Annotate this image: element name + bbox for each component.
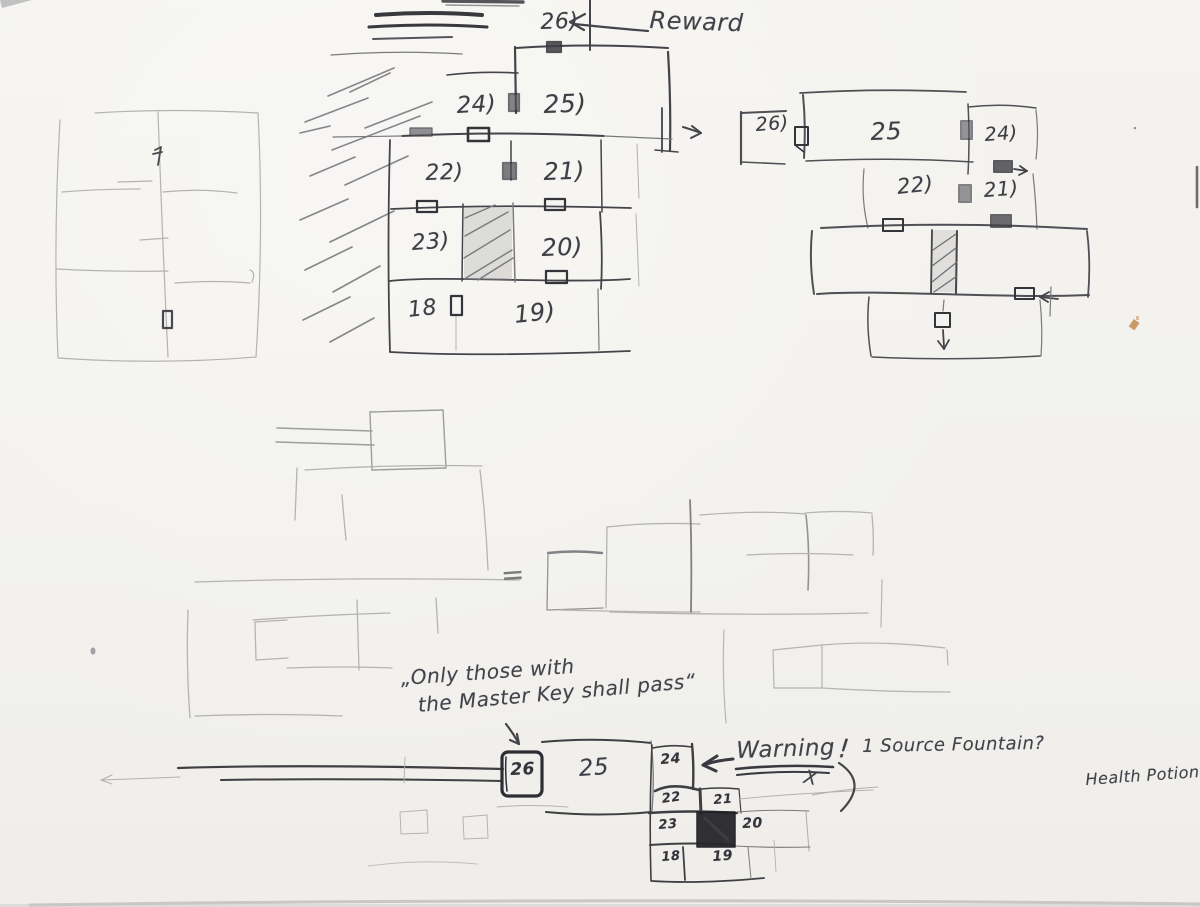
map-main-hatched-cell [462,203,515,282]
room-label-main-26: 26) [540,11,579,34]
equals-annotation: = [500,560,526,590]
room-label-right-24: 24) [984,124,1018,145]
room-label-bottom-18: 18 [661,850,681,864]
warning-annotation: Warning [736,737,835,763]
warning-bracket [839,763,855,811]
map-main-top-strokes [331,13,487,55]
faint-sketch-lower-right [723,580,950,723]
room-label-right-22: 22) [896,173,934,198]
room-label-right-26: 26) [755,114,789,135]
room-label-main-23: 23) [411,230,451,255]
map-right-walls [741,90,1089,359]
room-label-main-22: 22) [425,162,464,185]
map-bottom-corridor [101,766,503,784]
reward-arrow-icon [570,14,648,31]
room-label-bottom-22: 22 [661,790,682,806]
room-label-bottom-23: 23 [658,818,678,832]
room-label-main-19: 19) [513,299,557,327]
sketch-page: 26) 24) 25) 22) 21) 23) 20) 18 19) 26) 2… [0,0,1200,907]
room-label-bottom-21: 21 [713,793,733,807]
map-right-hatched-column [931,230,957,293]
room-label-bottom-24: 24 [660,752,681,767]
room-label-main-18: 18 [407,297,438,322]
transform-arrow-icon [683,126,701,138]
reward-annotation: Reward [649,8,744,35]
room-label-main-21: 21) [543,159,585,184]
room-label-bottom-25: 25 [578,756,610,781]
warning-arrow-icon [703,756,733,771]
room-label-right-21: 21) [983,178,1019,200]
paper-specks [91,127,1140,655]
room-label-main-24: 24) [456,93,497,118]
fountain-question: 1 Source Fountain? [862,735,1045,756]
room-label-bottom-19: 19 [712,849,733,864]
room-label-main-25: 25) [543,90,587,116]
room-label-main-20: 20) [541,235,583,260]
room-label-bottom-26: 26 [510,761,535,779]
map-bottom-dark-cell [697,812,735,847]
faint-sketch-upper [276,410,446,470]
faint-sketch-equivalent [547,500,873,614]
room-label-right-25: 25 [870,119,902,144]
room-label-bottom-20: 20 [742,816,763,831]
quote-arrow-icon [506,724,519,744]
